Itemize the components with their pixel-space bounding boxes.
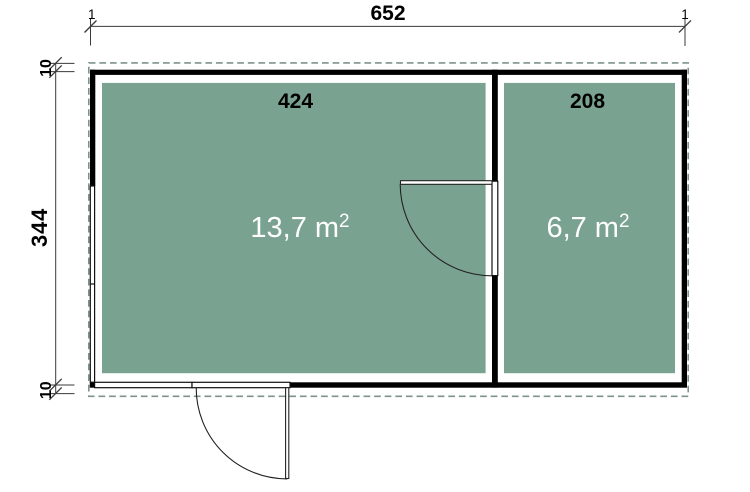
svg-text:424: 424	[278, 90, 313, 113]
svg-text:10: 10	[38, 381, 55, 399]
svg-text:10: 10	[38, 59, 55, 77]
svg-text:6,7 m2: 6,7 m2	[546, 211, 629, 244]
svg-text:344: 344	[27, 208, 52, 247]
svg-text:1: 1	[681, 7, 689, 22]
svg-text:13,7 m2: 13,7 m2	[250, 211, 349, 244]
svg-text:652: 652	[370, 2, 405, 25]
svg-text:1: 1	[88, 7, 96, 22]
svg-text:208: 208	[570, 90, 605, 113]
